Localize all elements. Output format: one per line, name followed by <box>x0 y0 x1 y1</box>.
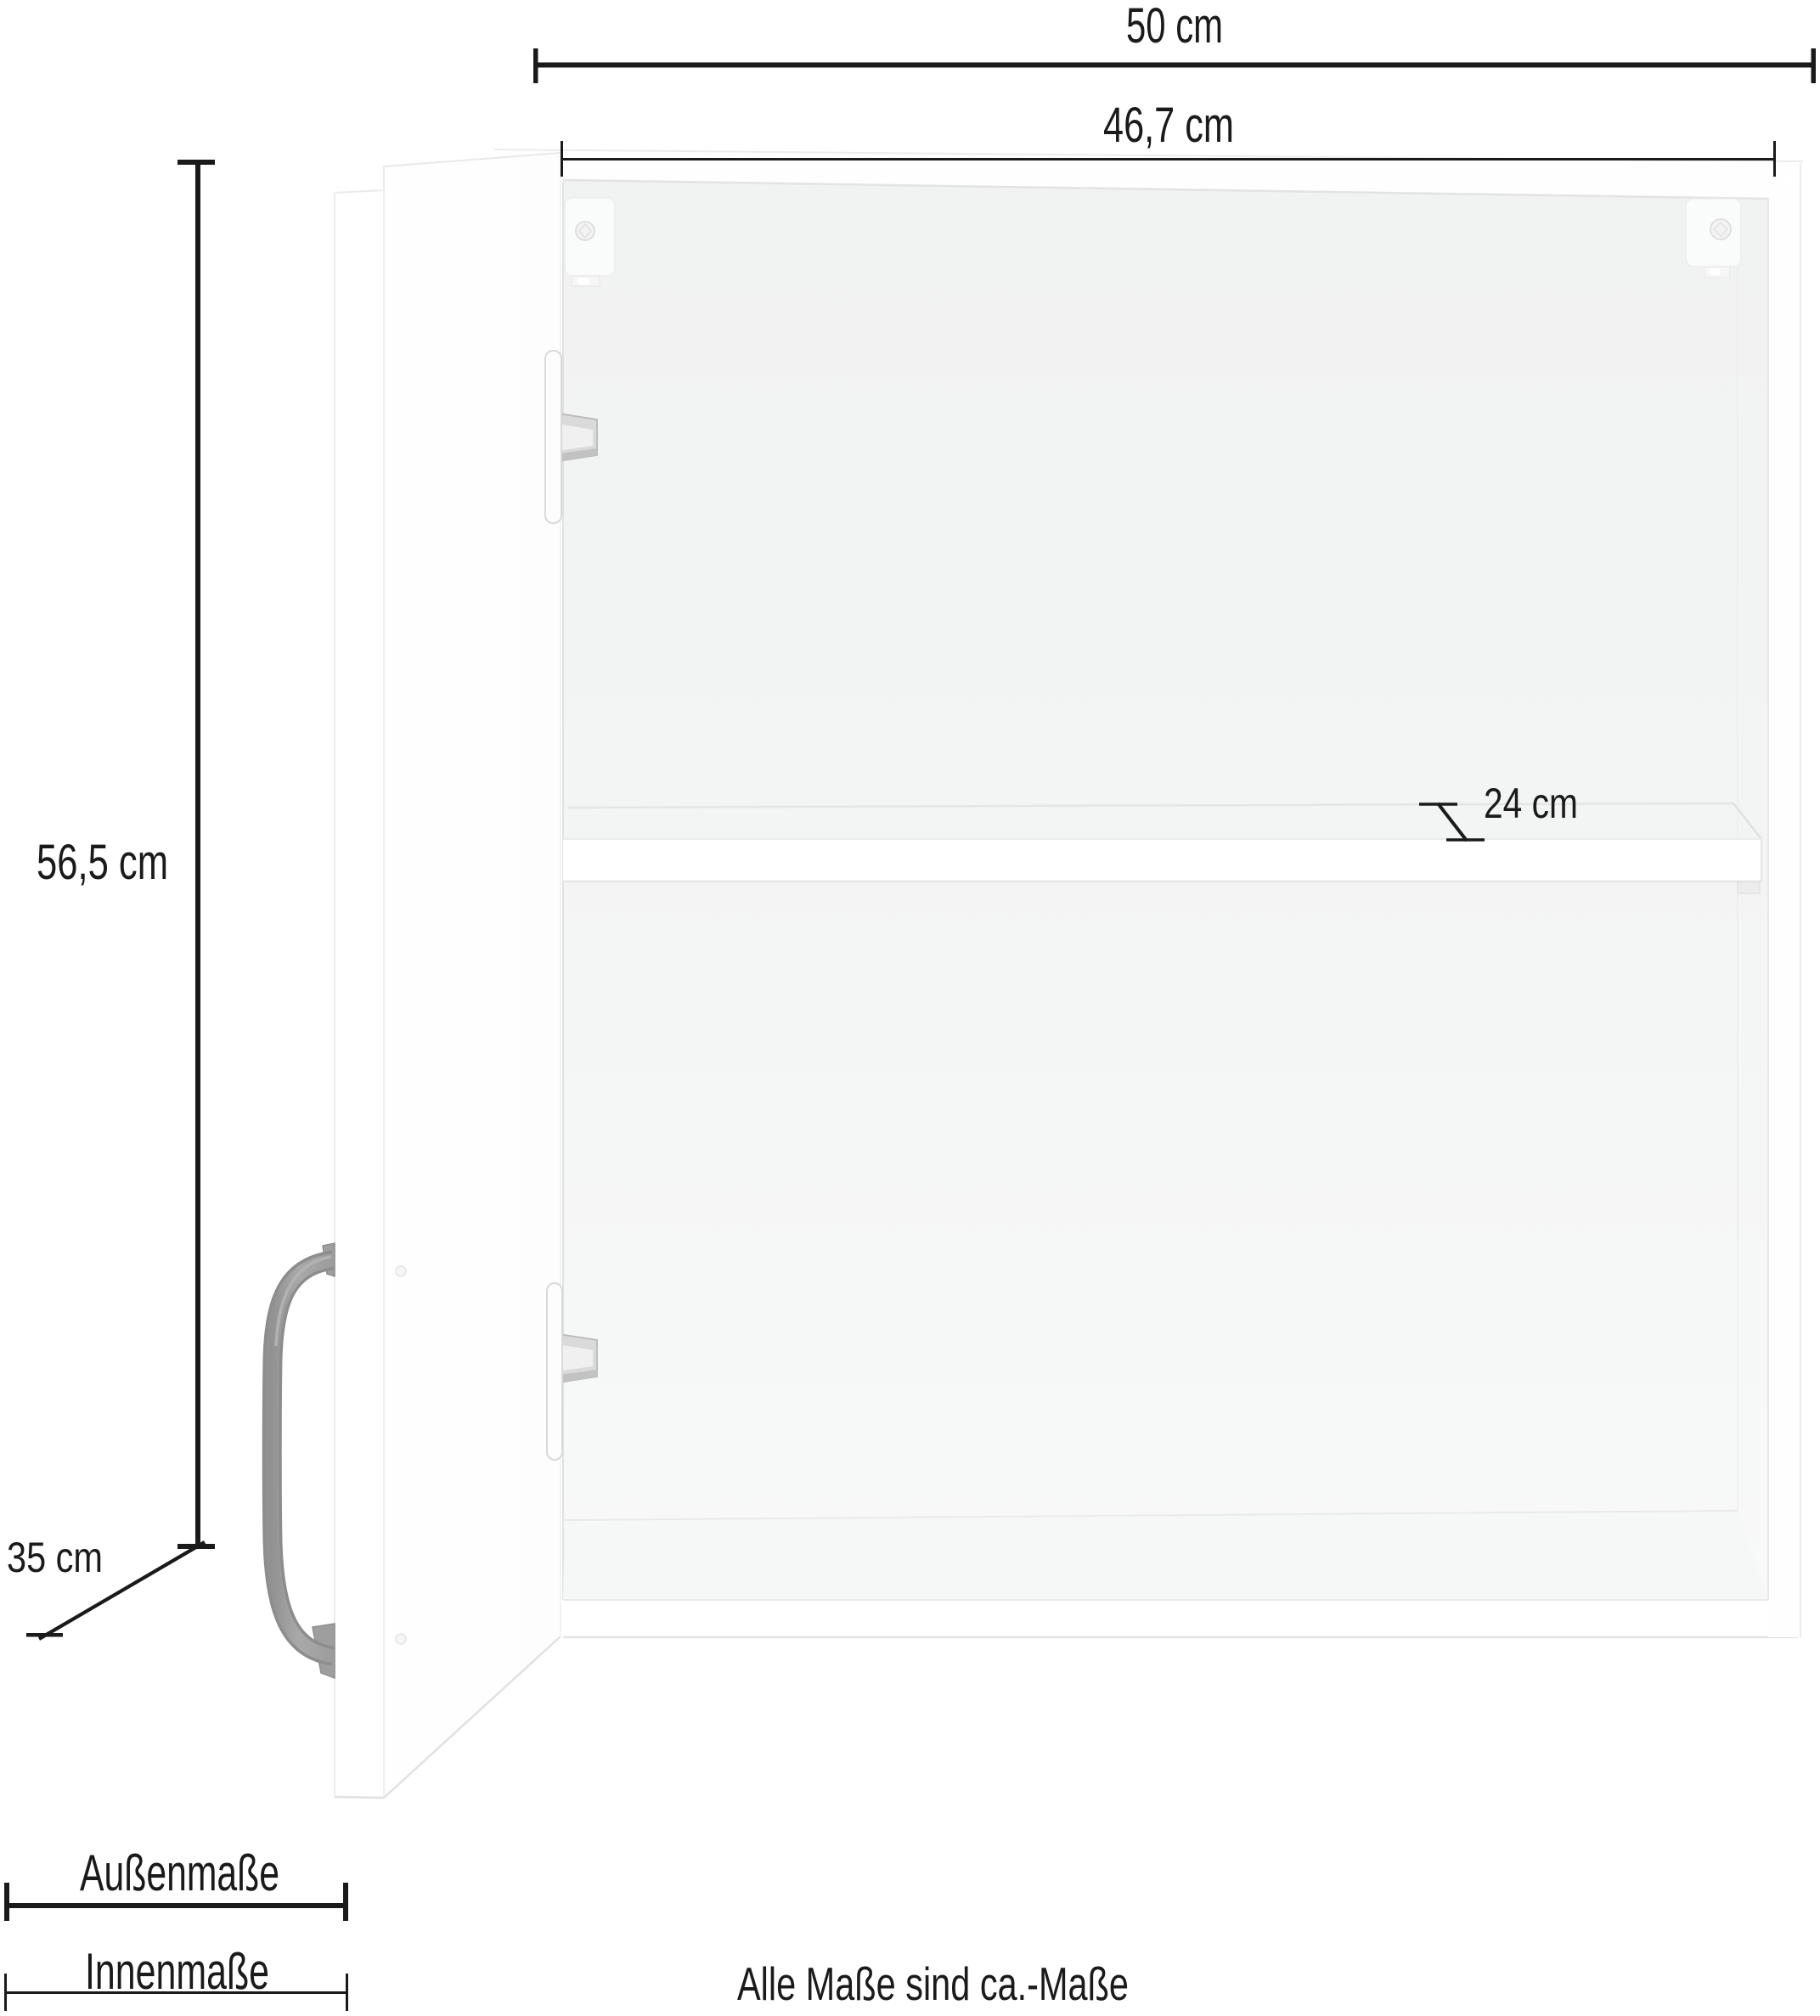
svg-text:Alle Maße sind ca.-Maße: Alle Maße sind ca.-Maße <box>737 1957 1129 2010</box>
svg-text:56,5 cm: 56,5 cm <box>37 835 168 890</box>
svg-text:50 cm: 50 cm <box>1126 0 1223 53</box>
svg-text:46,7 cm: 46,7 cm <box>1103 98 1234 153</box>
svg-text:Innenmaße: Innenmaße <box>85 1943 269 2000</box>
svg-text:Außenmaße: Außenmaße <box>80 1844 279 1901</box>
svg-text:24 cm: 24 cm <box>1484 780 1578 827</box>
svg-text:35 cm: 35 cm <box>7 1534 103 1581</box>
